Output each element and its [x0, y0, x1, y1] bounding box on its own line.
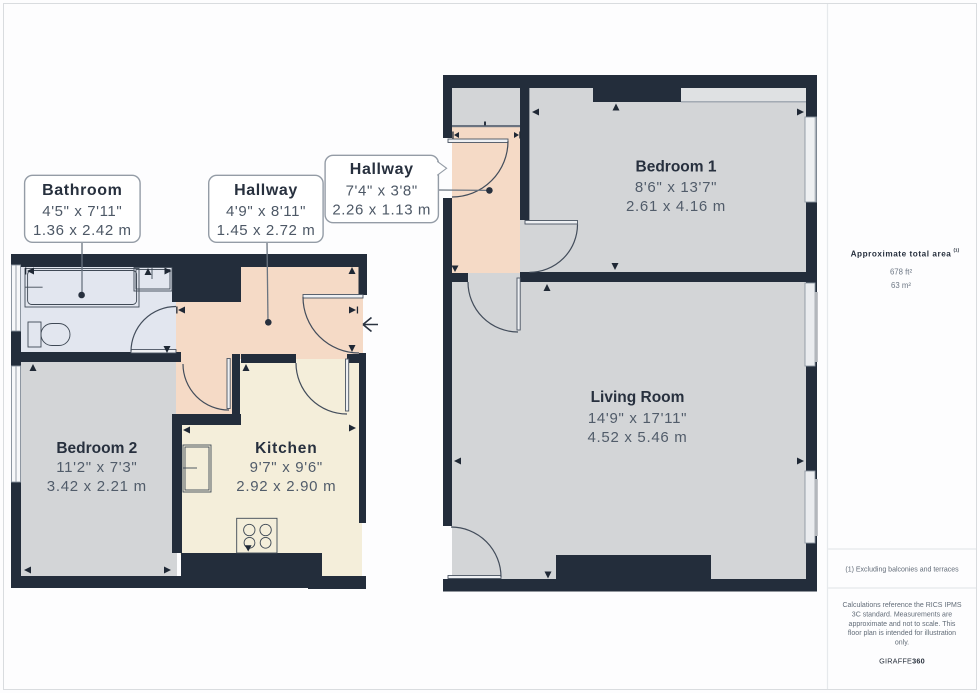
svg-text:9'7" x 9'6": 9'7" x 9'6" [250, 459, 323, 476]
svg-text:1.36 x 2.42 m: 1.36 x 2.42 m [33, 222, 132, 239]
svg-text:Bedroom 1: Bedroom 1 [636, 159, 717, 176]
svg-text:(1): (1) [954, 248, 960, 253]
svg-text:63 m²: 63 m² [891, 281, 911, 290]
svg-text:3C standard. Measurements are: 3C standard. Measurements are [852, 612, 952, 619]
svg-text:2.92 x 2.90 m: 2.92 x 2.90 m [236, 478, 336, 495]
svg-text:Bedroom 2: Bedroom 2 [56, 440, 137, 457]
svg-text:Hallway: Hallway [234, 182, 298, 199]
svg-text:14'9" x 17'11": 14'9" x 17'11" [588, 410, 687, 427]
svg-text:7'4" x 3'8": 7'4" x 3'8" [346, 183, 418, 200]
svg-text:only.: only. [895, 639, 909, 646]
svg-text:(1) Excluding balconies and te: (1) Excluding balconies and terraces [845, 567, 959, 574]
svg-text:4.52 x 5.46 m: 4.52 x 5.46 m [588, 429, 688, 446]
svg-text:approximate and not to scale.: approximate and not to scale. This [849, 621, 956, 628]
svg-text:Approximate total area: Approximate total area [851, 250, 952, 259]
svg-text:4'5" x 7'11": 4'5" x 7'11" [42, 203, 122, 220]
svg-text:Bathroom: Bathroom [42, 182, 122, 199]
svg-text:Hallway: Hallway [350, 161, 414, 178]
svg-text:GIRAFFE360: GIRAFFE360 [879, 657, 925, 666]
svg-text:2.26 x 1.13 m: 2.26 x 1.13 m [332, 201, 431, 218]
svg-text:2.61 x 4.16 m: 2.61 x 4.16 m [626, 198, 726, 215]
svg-text:678 ft²: 678 ft² [890, 267, 913, 276]
svg-text:4'9" x 8'11": 4'9" x 8'11" [226, 203, 306, 220]
svg-text:Calculations reference the RIC: Calculations reference the RICS IPMS [842, 602, 961, 609]
svg-text:1.45 x 2.72 m: 1.45 x 2.72 m [217, 222, 316, 239]
svg-text:8'6" x 13'7": 8'6" x 13'7" [635, 179, 717, 196]
svg-text:floor plan is intended for ill: floor plan is intended for illustration [848, 630, 956, 637]
svg-text:Kitchen: Kitchen [255, 440, 317, 457]
svg-text:11'2" x 7'3": 11'2" x 7'3" [56, 459, 137, 476]
svg-text:3.42 x 2.21 m: 3.42 x 2.21 m [47, 478, 147, 495]
svg-text:Living Room: Living Room [591, 389, 685, 406]
